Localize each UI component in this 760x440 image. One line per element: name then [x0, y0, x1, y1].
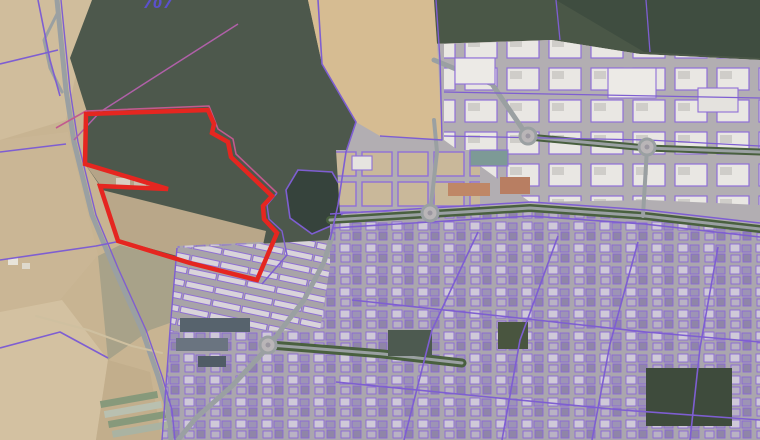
aerial-map: 707 [0, 0, 760, 440]
teal-roof-building [470, 150, 508, 166]
parcel-number-label: 707 [143, 0, 173, 12]
development-white-building [352, 156, 372, 170]
park-south [498, 322, 528, 349]
roundabout-southwest-island [266, 343, 271, 348]
orange-roof-terrace-2 [500, 177, 530, 194]
orange-roof-terrace-1 [448, 183, 490, 196]
sports-ground [388, 330, 432, 356]
warehouse-3 [698, 88, 738, 112]
school-block-2 [176, 338, 228, 351]
school-block-1 [180, 318, 250, 332]
warehouse-2 [608, 68, 656, 98]
farm-building-2 [22, 263, 30, 269]
warehouse-1 [455, 58, 495, 84]
map-viewport[interactable]: 707 [0, 0, 760, 440]
roundabout-center-island [428, 211, 433, 216]
roundabout-industrial-west-island [526, 134, 531, 139]
school-block-3 [198, 356, 226, 367]
roundabout-industrial-east-island [645, 145, 650, 150]
